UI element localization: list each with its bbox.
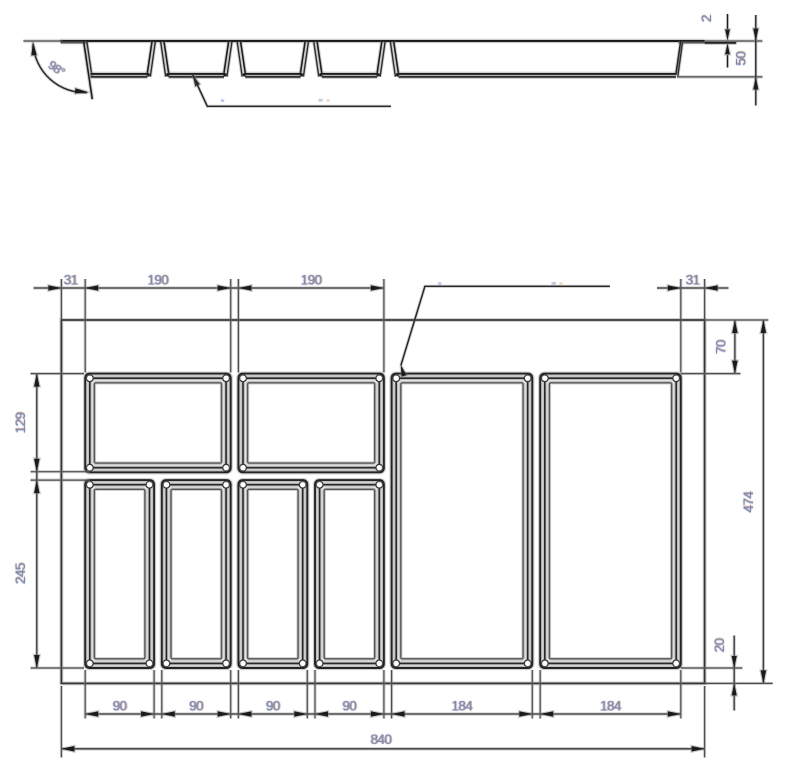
svg-text:190: 190 [147, 273, 168, 288]
svg-text:184: 184 [600, 698, 622, 713]
svg-text:90: 90 [189, 698, 203, 713]
svg-text:50: 50 [734, 52, 749, 66]
svg-text:70: 70 [713, 340, 728, 354]
svg-text:190: 190 [301, 273, 322, 288]
svg-text:2: 2 [699, 15, 714, 22]
svg-text:840: 840 [371, 732, 392, 747]
svg-text:474: 474 [741, 491, 756, 513]
svg-text:90: 90 [266, 698, 280, 713]
svg-text:90: 90 [113, 698, 127, 713]
svg-text:20: 20 [712, 638, 727, 652]
svg-text:31: 31 [64, 273, 78, 288]
svg-text:245: 245 [13, 563, 28, 584]
svg-text:31: 31 [686, 273, 700, 288]
svg-text:184: 184 [451, 698, 473, 713]
svg-text:98°: 98° [46, 58, 68, 80]
svg-text:90: 90 [342, 698, 356, 713]
svg-text:129: 129 [13, 412, 28, 433]
